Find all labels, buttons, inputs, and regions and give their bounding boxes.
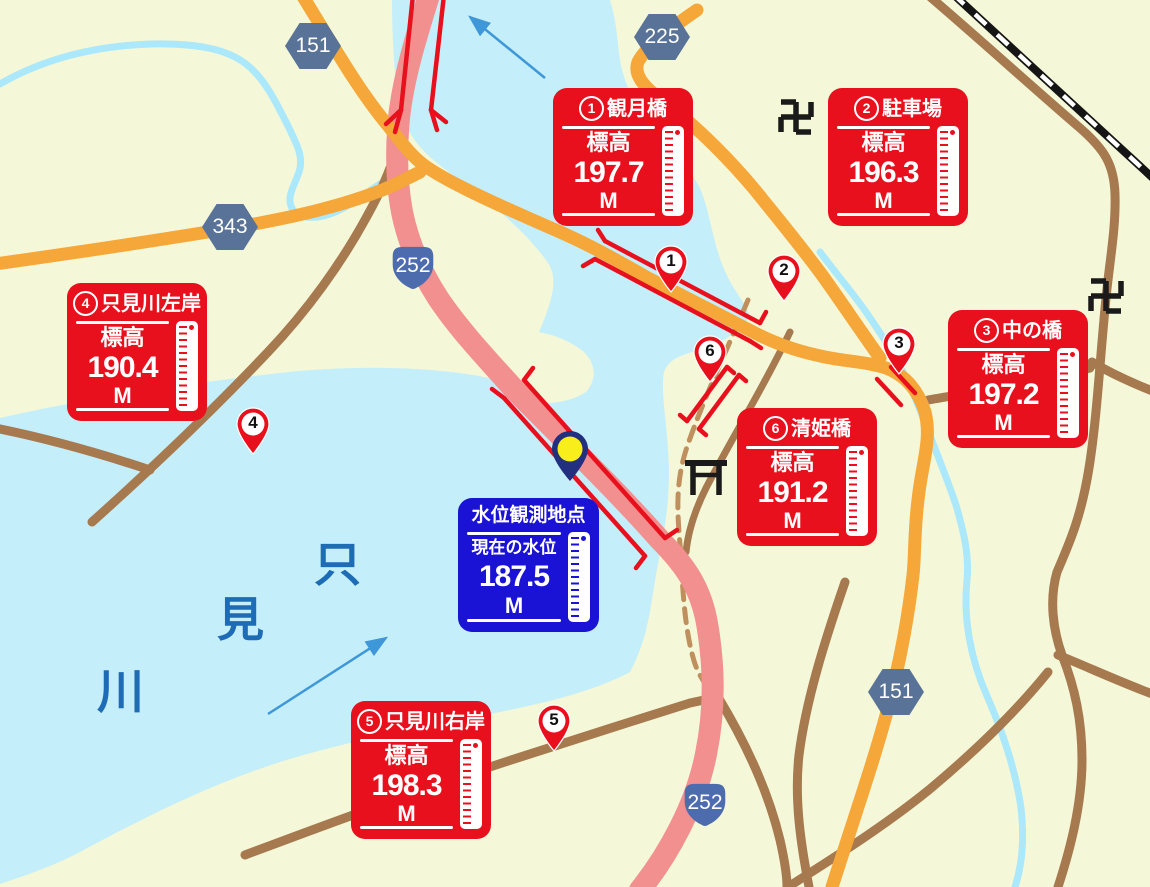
marker-title: 4 只見川左岸 xyxy=(76,291,198,316)
stream-upper-left xyxy=(0,44,380,217)
route-badge-252-south: 252 xyxy=(676,782,734,830)
divider xyxy=(957,435,1050,438)
marker-box-naka-bridge: 3 中の橋 標高 197.2 M xyxy=(948,310,1088,448)
water-station-pin xyxy=(551,430,589,482)
water-station-box: 水位観測地点 現在の水位 187.5 M xyxy=(458,498,599,632)
ruler-icon xyxy=(1057,348,1079,438)
elevation-unit: M xyxy=(599,189,617,212)
divider xyxy=(76,321,169,324)
ruler-icon xyxy=(662,126,684,216)
elevation-label: 標高 xyxy=(861,130,905,156)
ruler-icon xyxy=(460,739,482,829)
marker-box-kiyohime-bridge: 6 清姫橋 標高 191.2 M xyxy=(737,408,877,546)
divider xyxy=(360,826,453,829)
map-pin-1: 1 xyxy=(654,245,688,293)
water-level-unit: M xyxy=(505,594,523,617)
marker-number-badge: 2 xyxy=(854,96,879,121)
divider xyxy=(746,446,839,449)
marker-box-left-bank: 4 只見川左岸 標高 190.4 M xyxy=(67,283,207,421)
elevation-unit: M xyxy=(113,384,131,407)
ruler-icon xyxy=(937,126,959,216)
marker-box-right-bank: 5 只見川右岸 標高 198.3 M xyxy=(351,701,491,839)
elevation-label: 標高 xyxy=(770,450,814,476)
marker-title: 6 清姫橋 xyxy=(746,416,868,441)
divider xyxy=(837,213,930,216)
ruler-icon xyxy=(846,446,868,536)
elevation-unit: M xyxy=(783,509,801,532)
marker-number-badge: 5 xyxy=(357,709,382,734)
elevation-value: 197.7 xyxy=(573,157,643,189)
elevation-label: 標高 xyxy=(384,743,428,769)
elevation-value: 191.2 xyxy=(757,477,827,509)
elevation-value: 198.3 xyxy=(371,770,441,802)
marker-title: 3 中の橋 xyxy=(957,318,1079,343)
divider xyxy=(746,533,839,536)
divider xyxy=(76,408,169,411)
river-name-char: 見 xyxy=(217,596,264,643)
divider xyxy=(467,532,561,535)
divider xyxy=(562,213,655,216)
water-station-title: 水位観測地点 xyxy=(467,506,590,527)
divider xyxy=(957,348,1050,351)
map-pin-3: 3 xyxy=(882,327,916,375)
marker-number-badge: 6 xyxy=(763,416,788,441)
marker-number-badge: 3 xyxy=(974,318,999,343)
ruler-icon xyxy=(176,321,198,411)
marker-title: 5 只見川右岸 xyxy=(360,709,482,734)
divider xyxy=(360,739,453,742)
elevation-label: 標高 xyxy=(100,325,144,351)
marker-number-badge: 1 xyxy=(579,96,604,121)
marker-box-parking: 2 駐車場 標高 196.3 M xyxy=(828,88,968,226)
divider xyxy=(562,126,655,129)
elevation-value: 197.2 xyxy=(968,379,1038,411)
map-pin-4: 4 xyxy=(236,407,270,455)
elevation-value: 190.4 xyxy=(87,352,157,384)
river-name-char: 只 xyxy=(314,541,361,588)
map-pin-2: 2 xyxy=(767,254,801,302)
route-badge-252-north: 252 xyxy=(384,245,442,293)
elevation-unit: M xyxy=(397,802,415,825)
elevation-unit: M xyxy=(994,411,1012,434)
marker-title: 1 観月橋 xyxy=(562,96,684,121)
elevation-unit: M xyxy=(874,189,892,212)
ruler-icon xyxy=(568,532,590,622)
divider xyxy=(837,126,930,129)
water-level-label: 現在の水位 xyxy=(472,536,557,560)
marker-title: 2 駐車場 xyxy=(837,96,959,121)
elevation-label: 標高 xyxy=(586,130,630,156)
map-pin-5: 5 xyxy=(537,704,571,752)
divider xyxy=(467,619,561,622)
elevation-value: 196.3 xyxy=(848,157,918,189)
marker-box-kangetsu-bridge: 1 観月橋 標高 197.7 M xyxy=(553,88,693,226)
river-map: 151 225 343 252 252 151 只 見 川 1 2 3 4 5 … xyxy=(0,0,1150,887)
water-level-value: 187.5 xyxy=(479,561,549,593)
river-name-char: 川 xyxy=(97,668,144,715)
railway-line xyxy=(953,0,1150,180)
elevation-label: 標高 xyxy=(981,352,1025,378)
marker-number-badge: 4 xyxy=(73,291,98,316)
map-pin-6: 6 xyxy=(693,335,727,383)
